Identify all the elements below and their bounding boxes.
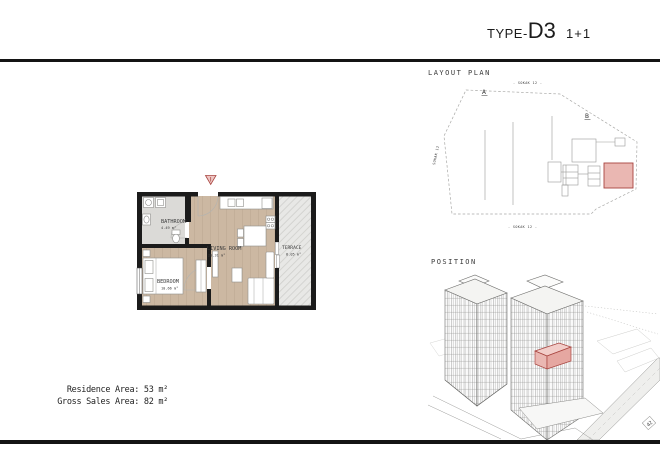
type-code: D3 <box>528 18 556 43</box>
type-prefix: TYPE- <box>487 26 528 41</box>
position-view: POSITION <box>425 248 660 440</box>
bedroom-label: BEDROOM <box>157 279 179 285</box>
bedroom-area: 10.66 m² <box>161 287 178 291</box>
layout-plan: LAYOUT PLAN A B - SOKAK 1 <box>425 60 660 240</box>
unit-highlight-site <box>604 163 633 188</box>
window <box>137 268 142 294</box>
terrace-label: TERRACE <box>282 245 302 251</box>
street-label-bottom: - SOKAK 12 - <box>508 225 537 229</box>
brochure-page: TYPE-D3 1+1 <box>0 0 660 466</box>
floor-plan: BATHROOM 4.49 m² BEDROOM 10.66 m² LIVING… <box>130 172 320 322</box>
residence-area-text: Residence Area: 53 m² <box>18 385 168 397</box>
area-summary: Residence Area: 53 m² Gross Sales Area: … <box>18 385 168 408</box>
position-title: POSITION <box>431 258 477 266</box>
site-boundary <box>444 90 637 214</box>
gross-sales-area-text: Gross Sales Area: 82 m² <box>18 397 168 409</box>
site-buildings <box>485 116 625 205</box>
street-label-top: - SOKAK 12 - <box>513 81 542 85</box>
living-room-label: LIVING ROOM <box>207 246 241 252</box>
layout-plan-title: LAYOUT PLAN <box>428 69 491 77</box>
entrance-marker-icon <box>206 176 217 185</box>
block-a-marker: A <box>482 88 486 96</box>
bathroom-label: BATHROOM <box>161 219 186 225</box>
block-b-marker: B <box>585 112 589 120</box>
page-title: TYPE-D3 <box>487 18 556 44</box>
living-room-area: 20.31 m² <box>208 254 225 258</box>
unit-type-label: 1+1 <box>566 26 591 41</box>
road-marker: 42 <box>642 416 655 429</box>
street-labels: - SOKAK 12 - - SOKAK 12 - SOKAK 12 <box>432 81 542 229</box>
terrace-area: 8.05 m² <box>286 253 301 257</box>
bathroom-area: 4.49 m² <box>161 226 176 230</box>
street-label-left: SOKAK 12 <box>432 145 440 165</box>
tower-a <box>445 275 507 406</box>
bottom-rule <box>0 440 660 444</box>
